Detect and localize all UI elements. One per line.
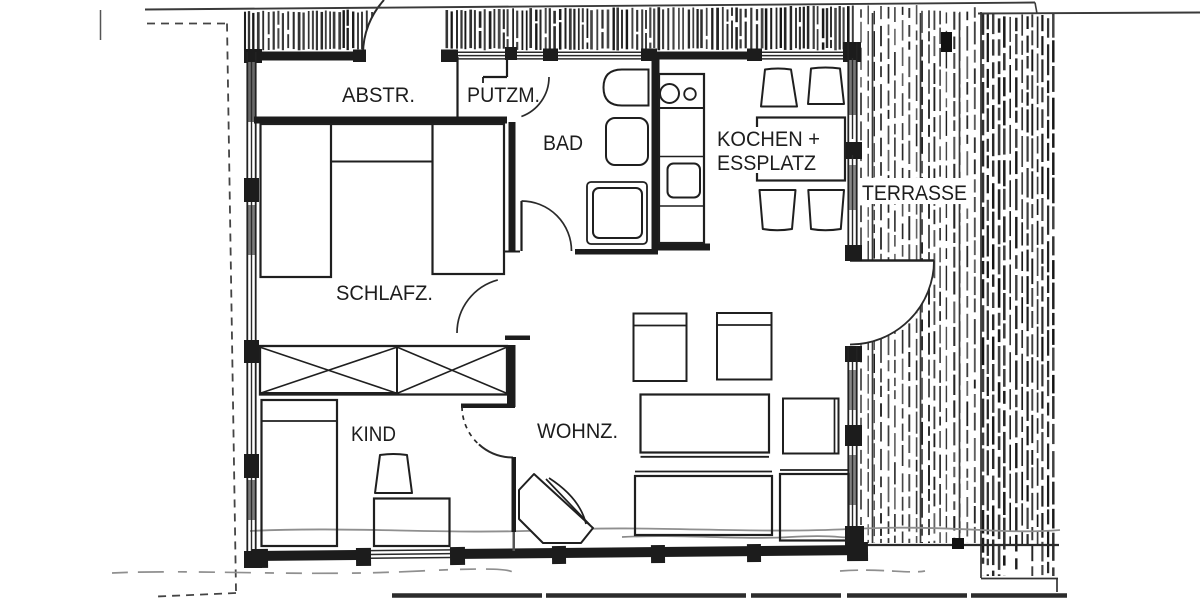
svg-text:BAD: BAD — [543, 132, 583, 155]
svg-text:ABSTR.: ABSTR. — [342, 84, 415, 107]
svg-text:KOCHEN +: KOCHEN + — [717, 128, 820, 151]
svg-text:SCHLAFZ.: SCHLAFZ. — [336, 282, 433, 305]
svg-text:ESSPLATZ: ESSPLATZ — [717, 152, 816, 175]
svg-text:KIND: KIND — [351, 423, 396, 446]
svg-text:WOHNZ.: WOHNZ. — [537, 420, 618, 443]
svg-text:TERRASSE: TERRASSE — [862, 182, 967, 205]
svg-text:PUTZM.: PUTZM. — [467, 84, 540, 107]
